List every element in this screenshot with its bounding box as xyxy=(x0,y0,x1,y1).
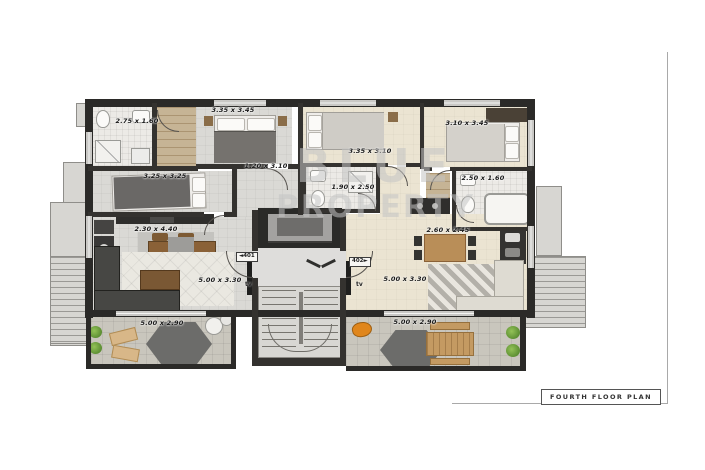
nightstand xyxy=(388,112,398,122)
dim-label-bed2-402: 3.10 x 3.45 xyxy=(446,120,489,127)
dim-label-hall-401: 1.20 x 3.10 xyxy=(245,163,288,170)
pillow xyxy=(217,118,245,131)
dining-table xyxy=(424,234,466,262)
coffee-table xyxy=(140,270,180,290)
wall-bed401b-bottom2 xyxy=(224,212,237,217)
plant-icon xyxy=(506,326,520,339)
kitchen-sink-icon xyxy=(505,233,520,242)
wall-bed401b-bottom xyxy=(88,212,204,217)
exterior-roof-right-top xyxy=(536,186,562,256)
pillow xyxy=(192,193,206,208)
floor-plan-sheet: FOURTH FLOOR PLAN xyxy=(0,0,705,470)
elevator-door-line xyxy=(268,241,332,243)
wall-bath402a-right xyxy=(376,167,380,213)
outdoor-bench xyxy=(430,358,470,365)
title-block-label: FOURTH FLOOR PLAN xyxy=(550,393,652,401)
tv-label-401: tv xyxy=(245,282,252,288)
wall-core-bottom xyxy=(252,358,346,366)
bed-duvet xyxy=(447,124,505,161)
dim-label-bed1-401: 3.35 x 3.45 xyxy=(212,107,255,114)
kitchen-island xyxy=(410,198,450,214)
wall-bed401a-bottom2 xyxy=(288,164,298,169)
dim-label-terrace-402: 5.00 x 2.90 xyxy=(394,319,437,326)
chair xyxy=(414,250,422,260)
wall-bath402a-left xyxy=(302,167,306,213)
toilet-icon xyxy=(96,110,110,128)
wall-bath402b-left xyxy=(452,171,456,227)
shower-icon xyxy=(95,140,121,163)
plant-icon xyxy=(506,344,520,357)
chair xyxy=(468,250,476,260)
pillow xyxy=(308,115,322,131)
railing-terrace-402-right xyxy=(520,314,526,371)
railing-terrace-402-bottom xyxy=(346,366,526,371)
sink-icon xyxy=(310,170,326,182)
pillow xyxy=(247,118,275,131)
dim-label-dining-401: 2.30 x 4.40 xyxy=(135,226,178,233)
wall-bed402b-left xyxy=(420,103,424,169)
railing-terrace-401-bottom xyxy=(86,364,236,369)
exterior-awning-left xyxy=(50,256,88,344)
chair xyxy=(152,233,168,241)
wall-bed401b-right xyxy=(232,166,237,217)
bed-duvet xyxy=(214,131,276,163)
elevator-car-inner xyxy=(277,218,323,236)
window xyxy=(86,216,92,258)
fridge-icon xyxy=(94,220,114,234)
bathtub-icon xyxy=(484,193,530,225)
burner-icon xyxy=(417,203,423,209)
burner-icon xyxy=(432,203,438,209)
dim-label-bed2-401: 3.25 x 3.25 xyxy=(144,173,187,180)
pillow xyxy=(505,126,519,142)
outdoor-table xyxy=(426,332,474,356)
pillow xyxy=(192,177,206,192)
chair xyxy=(468,236,476,246)
toilet-icon xyxy=(311,190,325,207)
window xyxy=(528,226,534,268)
tv-label-402: tv xyxy=(356,282,363,288)
window xyxy=(320,100,376,106)
wall-core-right-lower xyxy=(340,318,346,364)
pillow xyxy=(505,143,519,159)
unit-tag-402: 402► xyxy=(349,257,371,267)
dim-label-bed1-402: 3.35 x 3.10 xyxy=(349,148,392,155)
pillow xyxy=(308,132,322,148)
dim-label-bath1-402: 1.90 x 2.50 xyxy=(332,184,375,191)
title-block: FOURTH FLOOR PLAN xyxy=(541,389,661,405)
dim-label-living-401: 5.00 x 3.30 xyxy=(199,277,242,284)
bed-duvet xyxy=(322,113,384,149)
wall-bed402b-bottom2 xyxy=(450,167,532,171)
sliding-door xyxy=(116,311,206,316)
sheet-border-vertical xyxy=(667,52,668,404)
window xyxy=(444,100,500,106)
dim-label-dining-402: 2.60 x 2.45 xyxy=(427,227,470,234)
unit-tag-401: ◄401 xyxy=(236,252,258,262)
railing-terrace-401-left xyxy=(86,312,91,369)
wardrobe-402b xyxy=(486,108,528,122)
stair-landing-floor xyxy=(258,248,340,286)
dim-label-bath-401: 2.75 x 1.60 xyxy=(116,118,159,125)
wall-core-left-lower xyxy=(252,318,258,364)
window xyxy=(528,120,534,166)
washing-machine-icon xyxy=(131,148,150,164)
dim-label-bath2-402: 2.50 x 1.60 xyxy=(462,175,505,182)
dim-label-terrace-401: 5.00 x 2.90 xyxy=(141,320,184,327)
sliding-door xyxy=(384,311,474,316)
sofa xyxy=(94,290,180,312)
appliance-icon xyxy=(505,248,520,257)
nightstand xyxy=(278,116,287,126)
wall-bath401-bottom xyxy=(88,166,198,171)
window xyxy=(86,132,92,164)
dim-label-living-402: 5.00 x 3.30 xyxy=(384,276,427,283)
nightstand xyxy=(204,116,213,126)
chair xyxy=(414,236,422,246)
wall-bed402b-bottom xyxy=(424,167,432,171)
railing-terrace-401-right xyxy=(231,312,236,369)
